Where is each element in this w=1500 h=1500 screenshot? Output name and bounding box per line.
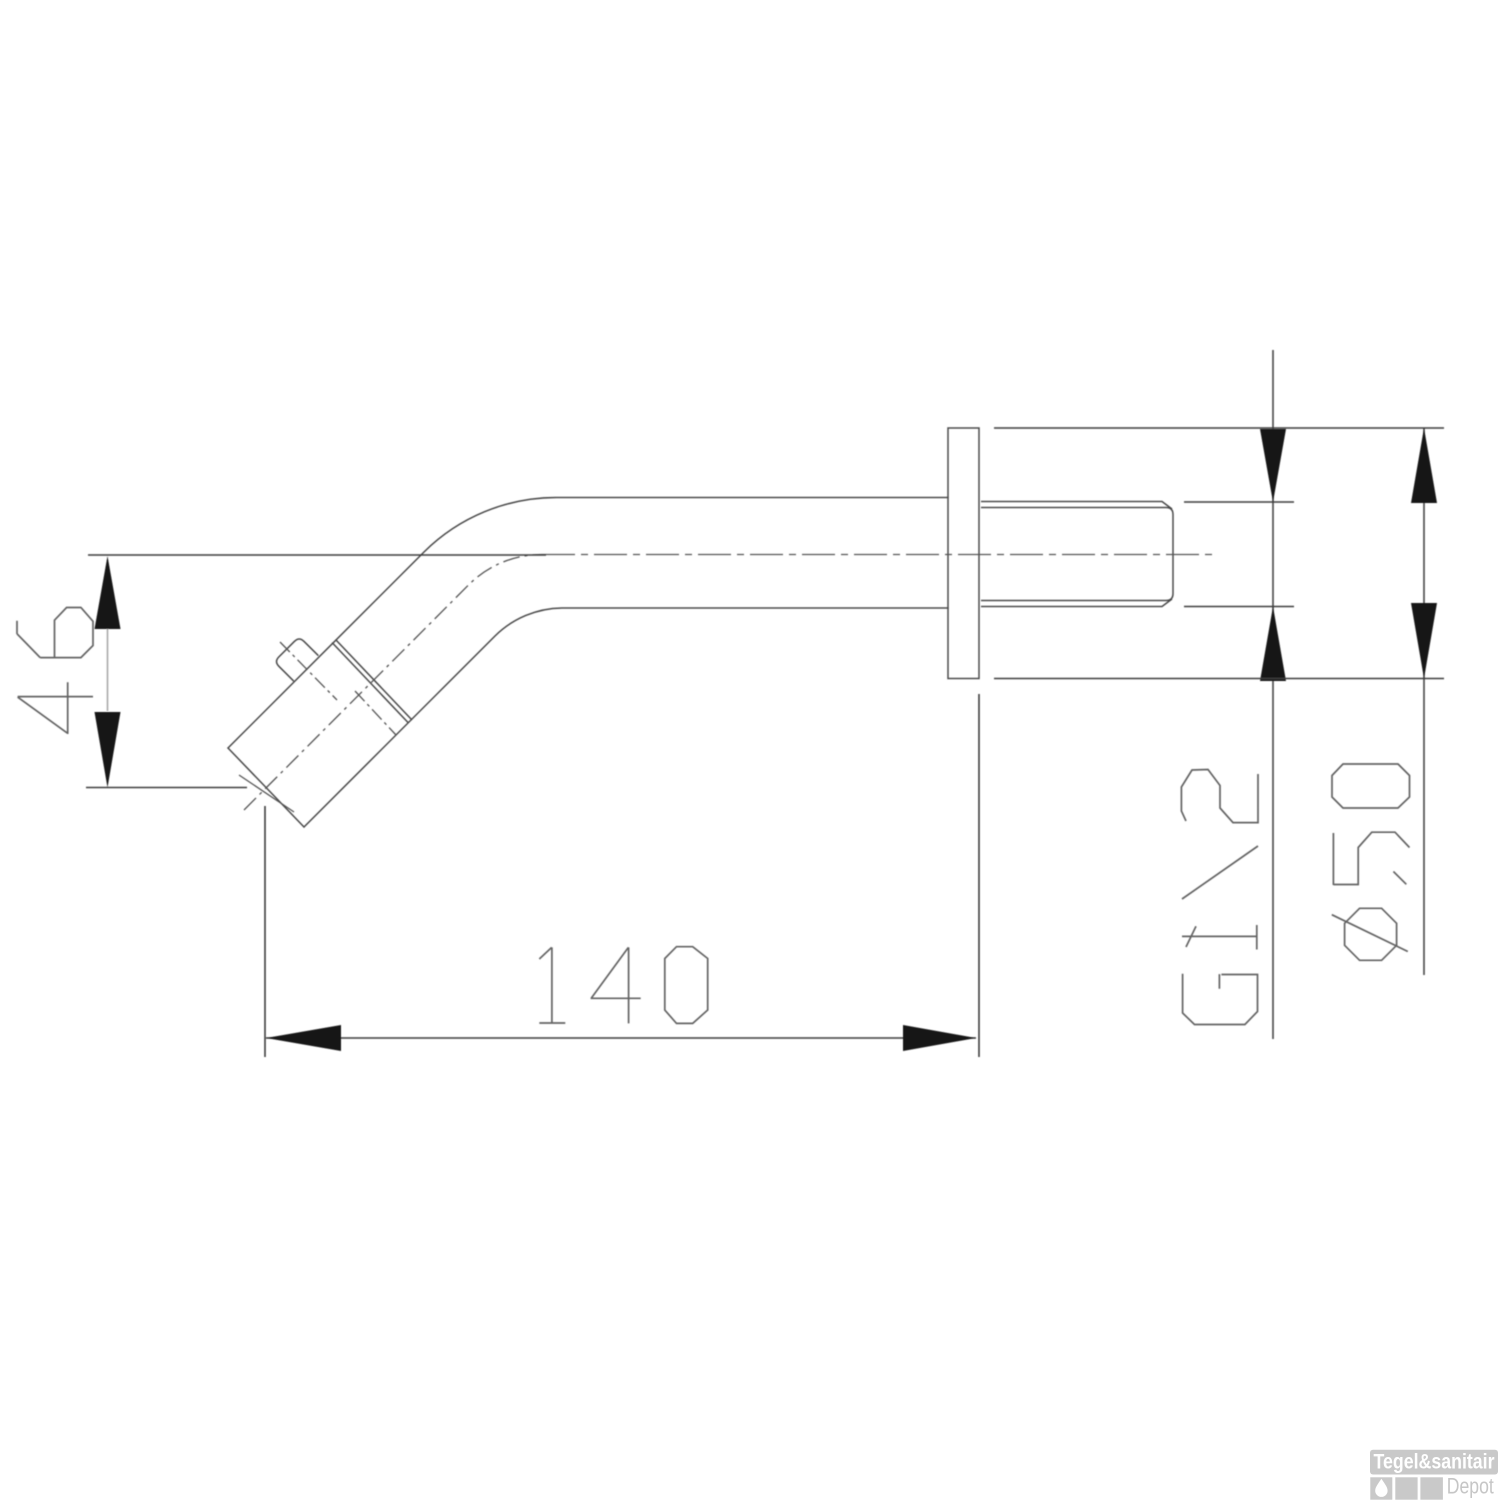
svg-text:Depot: Depot bbox=[1447, 1473, 1495, 1498]
svg-text:Tegel&sanitair: Tegel&sanitair bbox=[1374, 1450, 1495, 1473]
